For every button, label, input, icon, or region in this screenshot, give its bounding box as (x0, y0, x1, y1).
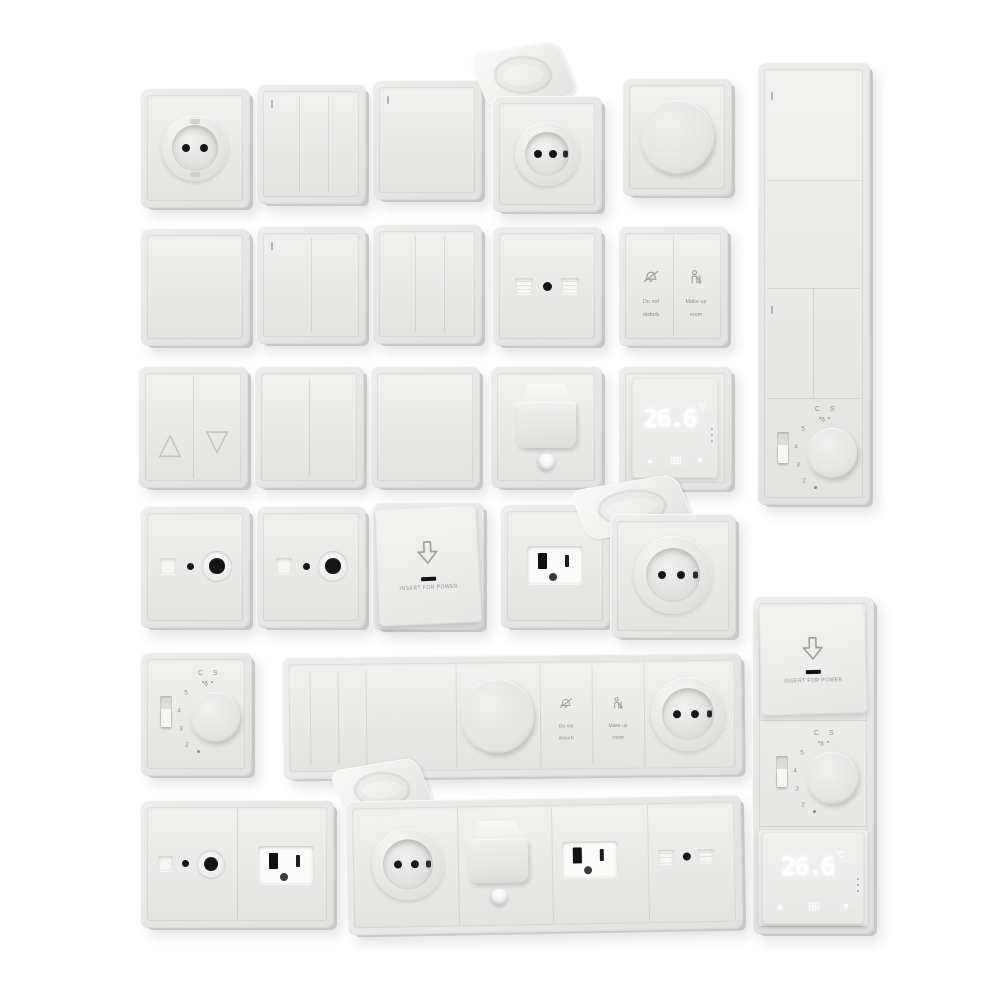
side-indicator-marks (711, 428, 713, 430)
switch-1-gang-plate (372, 80, 482, 200)
dial-number: 3 (796, 462, 800, 469)
blank-switch-plate (370, 366, 480, 488)
make-up-room-label: Make up room (685, 292, 706, 318)
jack-detail (517, 281, 531, 291)
dial-number: 3 (795, 786, 799, 793)
thermostat-dial-knob (806, 752, 858, 804)
temperature-unit: °C (836, 850, 845, 859)
coax-connector (202, 551, 232, 581)
data-jack (515, 278, 533, 294)
dial-number: 4 (794, 444, 798, 451)
make-up-room-icon (686, 268, 706, 288)
do-not-disturb-label: Do not disturb (643, 292, 660, 318)
toggle-lever (778, 445, 788, 463)
earth-contact (426, 860, 431, 867)
horizontal-combo-panel: Do not disturb Make up room (281, 653, 742, 780)
temperature-value: 26.6 (781, 852, 833, 881)
plate-inner (377, 373, 473, 481)
coax-connector (197, 850, 225, 878)
status-indicator (771, 92, 773, 100)
switch-2-gang-plate (254, 366, 364, 488)
coax-hole (204, 857, 219, 872)
dual-data-socket-plate (492, 226, 602, 346)
us-socket-recess (258, 846, 314, 884)
plate-inner (263, 91, 359, 197)
rocker-seam (299, 96, 300, 192)
rocker-seam (813, 288, 814, 398)
plate-inner (379, 87, 475, 193)
dimmer-knob (640, 100, 714, 174)
hood-front-face (516, 402, 576, 448)
hood-front-face (468, 838, 529, 883)
socket-recess (646, 548, 701, 603)
eu-socket (634, 536, 712, 614)
ground-hole (584, 866, 592, 874)
dial-number: 4 (793, 768, 797, 775)
insert-for-power-label: INSERT FOR POWER (760, 676, 866, 685)
eu-socket (651, 677, 726, 752)
switch-3-gang-plate (256, 84, 366, 204)
eu-socket (162, 115, 228, 181)
down-triangle-icon: ▽ (205, 424, 228, 459)
dial-number: 2 (802, 478, 806, 485)
status-indicator (387, 96, 389, 104)
us-socket-recess (527, 546, 583, 584)
jack-detail (700, 852, 712, 860)
coax-hole (325, 558, 341, 574)
module-jack (158, 856, 173, 871)
temperature-readout: 26.6°C (632, 402, 718, 433)
rocker-seam (444, 236, 445, 332)
do-not-disturb-icon (557, 696, 574, 713)
rocker-seam (309, 378, 310, 476)
switch-3-gang-plate (372, 224, 482, 344)
hood-top-face (472, 820, 523, 840)
data-jack (698, 849, 714, 863)
plate-inner (147, 235, 243, 339)
temperature-readout: 26.6°C (762, 850, 864, 881)
socket-recess (172, 125, 218, 171)
module-jack (276, 558, 292, 574)
label-line: room (690, 312, 703, 318)
touch-controls: ▲ ▼ (776, 902, 850, 911)
rotary-thermostat-plate: C S 6 5 4 3 2 (140, 652, 252, 776)
temp-down-button: ▼ (696, 456, 704, 465)
module-seam (767, 180, 860, 181)
make-up-room-icon (609, 695, 626, 712)
temp-up-button: ▲ (646, 456, 654, 465)
module-seam (237, 809, 238, 919)
pin-hole (549, 150, 557, 158)
card-slot (421, 576, 436, 581)
day-night-marking: C S (198, 670, 222, 677)
earth-clip (190, 119, 200, 124)
status-indicator (771, 306, 773, 314)
dial-number: 5 (800, 750, 804, 757)
ground-hole (280, 873, 288, 881)
do-not-disturb-label: Do not disturb (559, 717, 574, 741)
make-up-room-label: Make up room (608, 717, 627, 741)
digital-thermostat-plate: 26.6°C ▲ ▼ (618, 366, 732, 490)
vertical-3-module-panel: INSERT FOR POWER C S 6 5 4 3 2 26.6°C ▲ (752, 596, 874, 934)
cable-outlet-hood (467, 820, 528, 895)
dial-number: 2 (185, 742, 189, 749)
temp-up-button: ▲ (776, 902, 784, 911)
center-hole (683, 852, 691, 860)
blank-switch-plate (140, 228, 250, 346)
center-hole (543, 282, 552, 291)
pin-hole (411, 860, 419, 868)
toggle-lever (161, 709, 171, 727)
digital-thermostat: 26.6°C ▲ ▼ (632, 378, 718, 478)
socket-recess (382, 839, 433, 890)
temperature-unit: °C (698, 402, 707, 411)
double-socket-plate (140, 800, 334, 928)
dial-number: 4 (177, 708, 181, 715)
live-slot (269, 853, 278, 869)
data-jack (561, 278, 579, 294)
status-indicator (271, 242, 273, 250)
pin-hole (658, 571, 666, 579)
dial-number: 2 (801, 802, 805, 809)
rocker-seam (673, 236, 674, 336)
label-line: disturb (559, 735, 574, 741)
switch-2-gang-plate (256, 226, 366, 344)
day-night-marking: C S (815, 406, 839, 413)
rocker-seam (193, 376, 194, 478)
label-line: Make up (608, 723, 627, 729)
pin-hole (691, 710, 699, 718)
dial-number: 3 (179, 726, 183, 733)
blind-switch-plate: △ ▽ (138, 366, 248, 488)
insert-for-power-label: INSERT FOR POWER (378, 583, 481, 593)
frost-setting-dot (814, 486, 817, 489)
live-slot (538, 553, 547, 569)
menu-grid-icon (670, 456, 681, 465)
thermostat-dial-knob (190, 692, 240, 742)
hotel-service-switch-plate: Do not disturb Make up room (618, 226, 728, 346)
card-slot (806, 670, 821, 674)
eu-socket-plate (140, 88, 250, 208)
key-card-face: INSERT FOR POWER (759, 603, 868, 715)
neutral-slot (296, 855, 300, 867)
horizontal-socket-panel (345, 795, 743, 936)
cable-outlet-hood (516, 384, 576, 460)
pin-hole (200, 144, 208, 152)
label-line: Do not (643, 299, 659, 305)
neutral-slot (565, 555, 569, 567)
dial-number: 6 (820, 741, 824, 748)
plate-inner (379, 231, 475, 337)
rotary-thermostat: C S 6 5 4 3 2 (144, 666, 248, 762)
rocker-seam (311, 238, 312, 332)
socket-recess (525, 132, 570, 177)
key-card-holder-plate: INSERT FOR POWER (372, 502, 484, 630)
label-line: disturb (643, 312, 660, 318)
small-hole (182, 860, 189, 867)
us-socket-recess (562, 841, 619, 878)
earth-contact (563, 151, 568, 158)
dimmer-plate (622, 78, 732, 196)
dial-number: 6 (204, 681, 208, 688)
dimmer-knob (460, 679, 535, 754)
module-jack (160, 558, 176, 574)
tv-socket-plate (140, 506, 250, 628)
neutral-slot (600, 849, 604, 861)
label-line: Do not (559, 723, 574, 729)
dial-number: 5 (184, 690, 188, 697)
temperature-value: 26.6 (643, 404, 695, 433)
jack-detail (563, 281, 577, 291)
day-night-marking: C S (814, 730, 838, 737)
key-card-face: INSERT FOR POWER (375, 505, 482, 627)
jack-detail (660, 853, 672, 861)
frost-setting-dot (813, 810, 816, 813)
ground-hole (549, 573, 557, 581)
lid-underside-ring (487, 52, 559, 99)
touch-controls: ▲ ▼ (646, 456, 704, 465)
dial-number: 6 (821, 417, 825, 424)
eu-socket-lid-plate (492, 96, 602, 212)
rocker-seam (415, 236, 416, 332)
pin-hole (677, 571, 685, 579)
data-jack (658, 850, 674, 864)
up-triangle-icon: △ (158, 427, 181, 462)
module-seam (760, 720, 866, 721)
toggle-lever (777, 769, 787, 787)
label-line: room (613, 735, 624, 741)
small-hole (303, 563, 310, 570)
vertical-4-module-panel: C S 6 5 4 3 2 (757, 62, 870, 505)
status-indicator (271, 100, 273, 108)
module-seam (767, 398, 860, 399)
rocker-seam (328, 96, 329, 192)
earth-clip (190, 172, 200, 177)
tv-socket-plate (256, 506, 366, 628)
render-scene: C S 6 5 4 3 2 Do n (0, 0, 1000, 1000)
module-seam (760, 826, 866, 827)
eu-socket-lid-plate (610, 514, 736, 638)
earth-contact (693, 572, 698, 579)
menu-grid-icon (808, 902, 819, 911)
side-indicator-marks (857, 878, 859, 880)
label-line: Make up (685, 299, 706, 305)
socket-recess (662, 688, 714, 740)
frost-setting-dot (197, 750, 200, 753)
coax-hole (209, 558, 225, 574)
pin-hole (673, 710, 681, 718)
eu-socket (515, 122, 579, 186)
thermostat-toggle-switch (776, 756, 788, 788)
cable-outlet-plate (490, 366, 602, 488)
thermostat-toggle-switch (160, 696, 172, 728)
live-slot (573, 847, 582, 863)
pin-hole (534, 150, 542, 158)
do-not-disturb-icon (641, 268, 661, 288)
earth-contact (707, 710, 712, 717)
rotary-thermostat: C S 6 5 4 3 2 (761, 402, 865, 498)
coax-connector (318, 551, 348, 581)
pin-hole (182, 144, 190, 152)
digital-thermostat: 26.6°C ▲ ▼ (762, 832, 864, 924)
temp-down-button: ▼ (842, 902, 850, 911)
thermostat-dial-knob (807, 428, 857, 478)
dial-number: 5 (801, 426, 805, 433)
small-hole (187, 563, 194, 570)
insert-card-arrow-icon (411, 536, 444, 569)
hood-top-face (521, 384, 571, 404)
thermostat-toggle-switch (777, 432, 789, 464)
pin-hole (394, 860, 402, 868)
rotary-thermostat: C S 6 5 4 3 2 (760, 726, 864, 822)
insert-card-arrow-icon (796, 632, 829, 665)
